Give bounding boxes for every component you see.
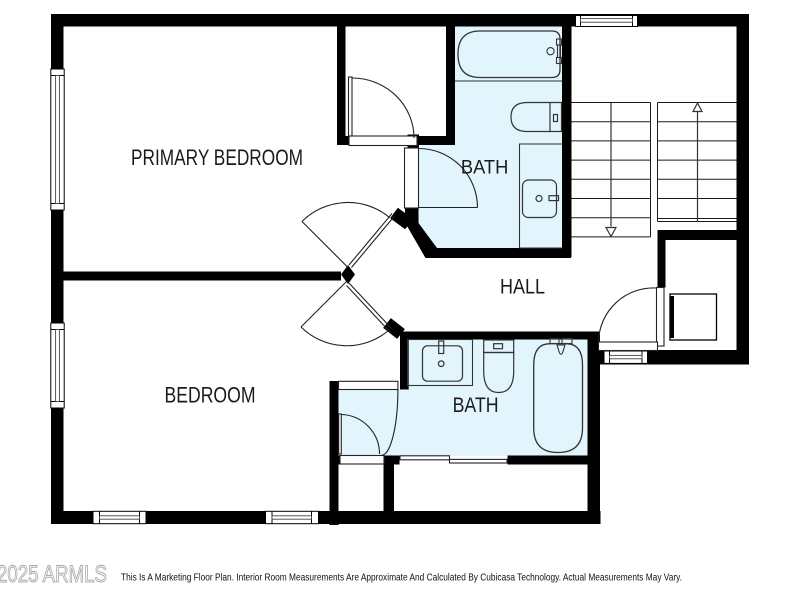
svg-text:This Is A Marketing Floor Plan: This Is A Marketing Floor Plan. Interior… bbox=[121, 573, 682, 584]
svg-text:BATH: BATH bbox=[453, 394, 499, 417]
svg-text:PRIMARY BEDROOM: PRIMARY BEDROOM bbox=[131, 145, 303, 170]
svg-text:2025 ARMLS: 2025 ARMLS bbox=[0, 561, 107, 588]
svg-text:HALL: HALL bbox=[500, 276, 545, 299]
svg-text:BEDROOM: BEDROOM bbox=[165, 383, 256, 408]
svg-text:BATH: BATH bbox=[461, 157, 509, 179]
